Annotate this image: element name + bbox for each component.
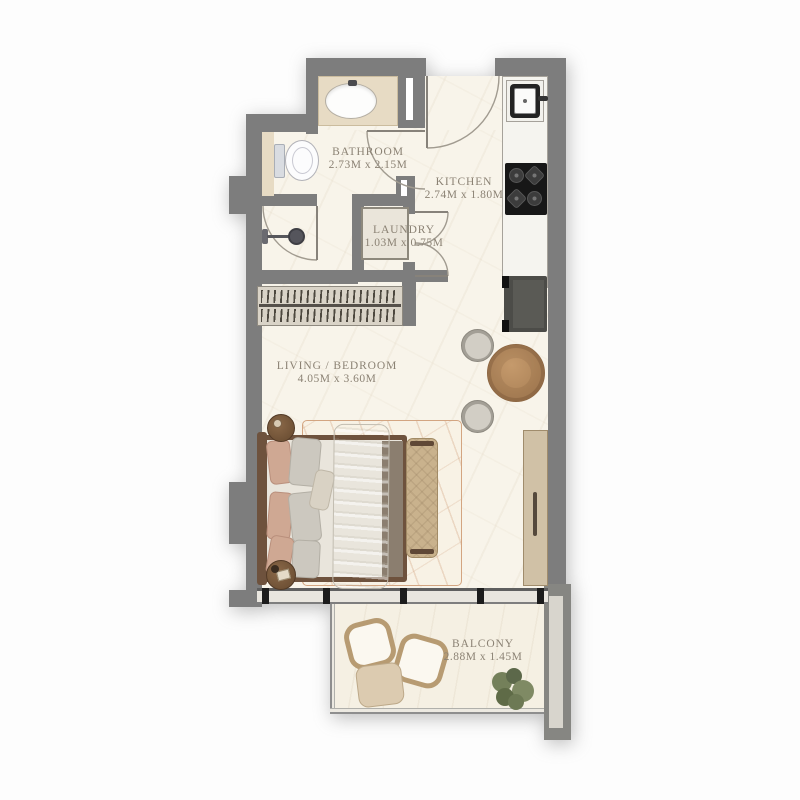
room-label-balcony: BALCONY 2.88M x 1.45M xyxy=(444,638,523,664)
living-bedroom-name: LIVING / BEDROOM xyxy=(277,360,397,373)
fridge-hinge xyxy=(502,320,509,332)
bench-cap xyxy=(410,441,434,446)
toilet-seat-line xyxy=(292,147,313,174)
tv-console-handle xyxy=(533,492,537,536)
window-mullion xyxy=(323,588,330,604)
floor-plan: BATHROOM 2.73M x 2.15M KITCHEN 2.74M x 1… xyxy=(0,0,800,800)
floor-plan-canvas: BATHROOM 2.73M x 2.15M KITCHEN 2.74M x 1… xyxy=(0,0,800,800)
outdoor-table xyxy=(355,661,406,708)
bench-cap xyxy=(410,549,434,554)
wardrobe-rail xyxy=(259,304,401,307)
window-mullion xyxy=(262,588,269,604)
throw-blanket xyxy=(332,424,389,589)
bed-headboard xyxy=(257,432,267,585)
kitchen-faucet xyxy=(538,96,548,101)
bathroom-name: BATHROOM xyxy=(329,146,408,159)
window-mullion xyxy=(537,588,544,604)
bench xyxy=(406,438,438,558)
room-label-living-bedroom: LIVING / BEDROOM 4.05M x 3.60M xyxy=(277,360,397,386)
plant xyxy=(508,694,524,710)
room-label-kitchen: KITCHEN 2.74M x 1.80M xyxy=(425,176,504,202)
window-mullion xyxy=(477,588,484,604)
stove-burner xyxy=(509,168,524,183)
room-label-bathroom: BATHROOM 2.73M x 2.15M xyxy=(329,146,408,172)
dining-chair xyxy=(461,400,494,433)
fridge-hinge xyxy=(502,276,509,288)
wardrobe-hangers-top xyxy=(261,290,399,303)
shower-head xyxy=(288,228,305,245)
wardrobe-hangers-bottom xyxy=(261,309,399,322)
bathroom-dims: 2.73M x 2.15M xyxy=(329,159,408,172)
vanity-sink xyxy=(325,83,377,119)
fridge-panel xyxy=(513,280,544,328)
kitchen-dims: 2.74M x 1.80M xyxy=(425,189,504,202)
balcony-name: BALCONY xyxy=(444,638,523,651)
living-bedroom-dims: 4.05M x 3.60M xyxy=(277,373,397,386)
kitchen-name: KITCHEN xyxy=(425,176,504,189)
dining-chair xyxy=(461,329,494,362)
side-table-cup xyxy=(271,565,279,573)
entry-door-arc xyxy=(427,76,499,148)
toilet-tank xyxy=(274,144,285,178)
room-label-laundry: LAUNDRY 1.03M x 0.75M xyxy=(365,224,444,250)
toilet-backsplash xyxy=(262,132,274,196)
laundry-dims: 1.03M x 0.75M xyxy=(365,237,444,250)
kitchen-sink-drain xyxy=(523,99,527,103)
balcony-dims: 2.88M x 1.45M xyxy=(444,651,523,664)
window-mullion xyxy=(400,588,407,604)
stove-burner xyxy=(527,191,542,206)
side-table xyxy=(267,414,295,442)
side-table-cup xyxy=(273,419,282,428)
laundry-name: LAUNDRY xyxy=(365,224,444,237)
dining-table xyxy=(487,344,545,402)
vanity-faucet xyxy=(348,80,357,86)
